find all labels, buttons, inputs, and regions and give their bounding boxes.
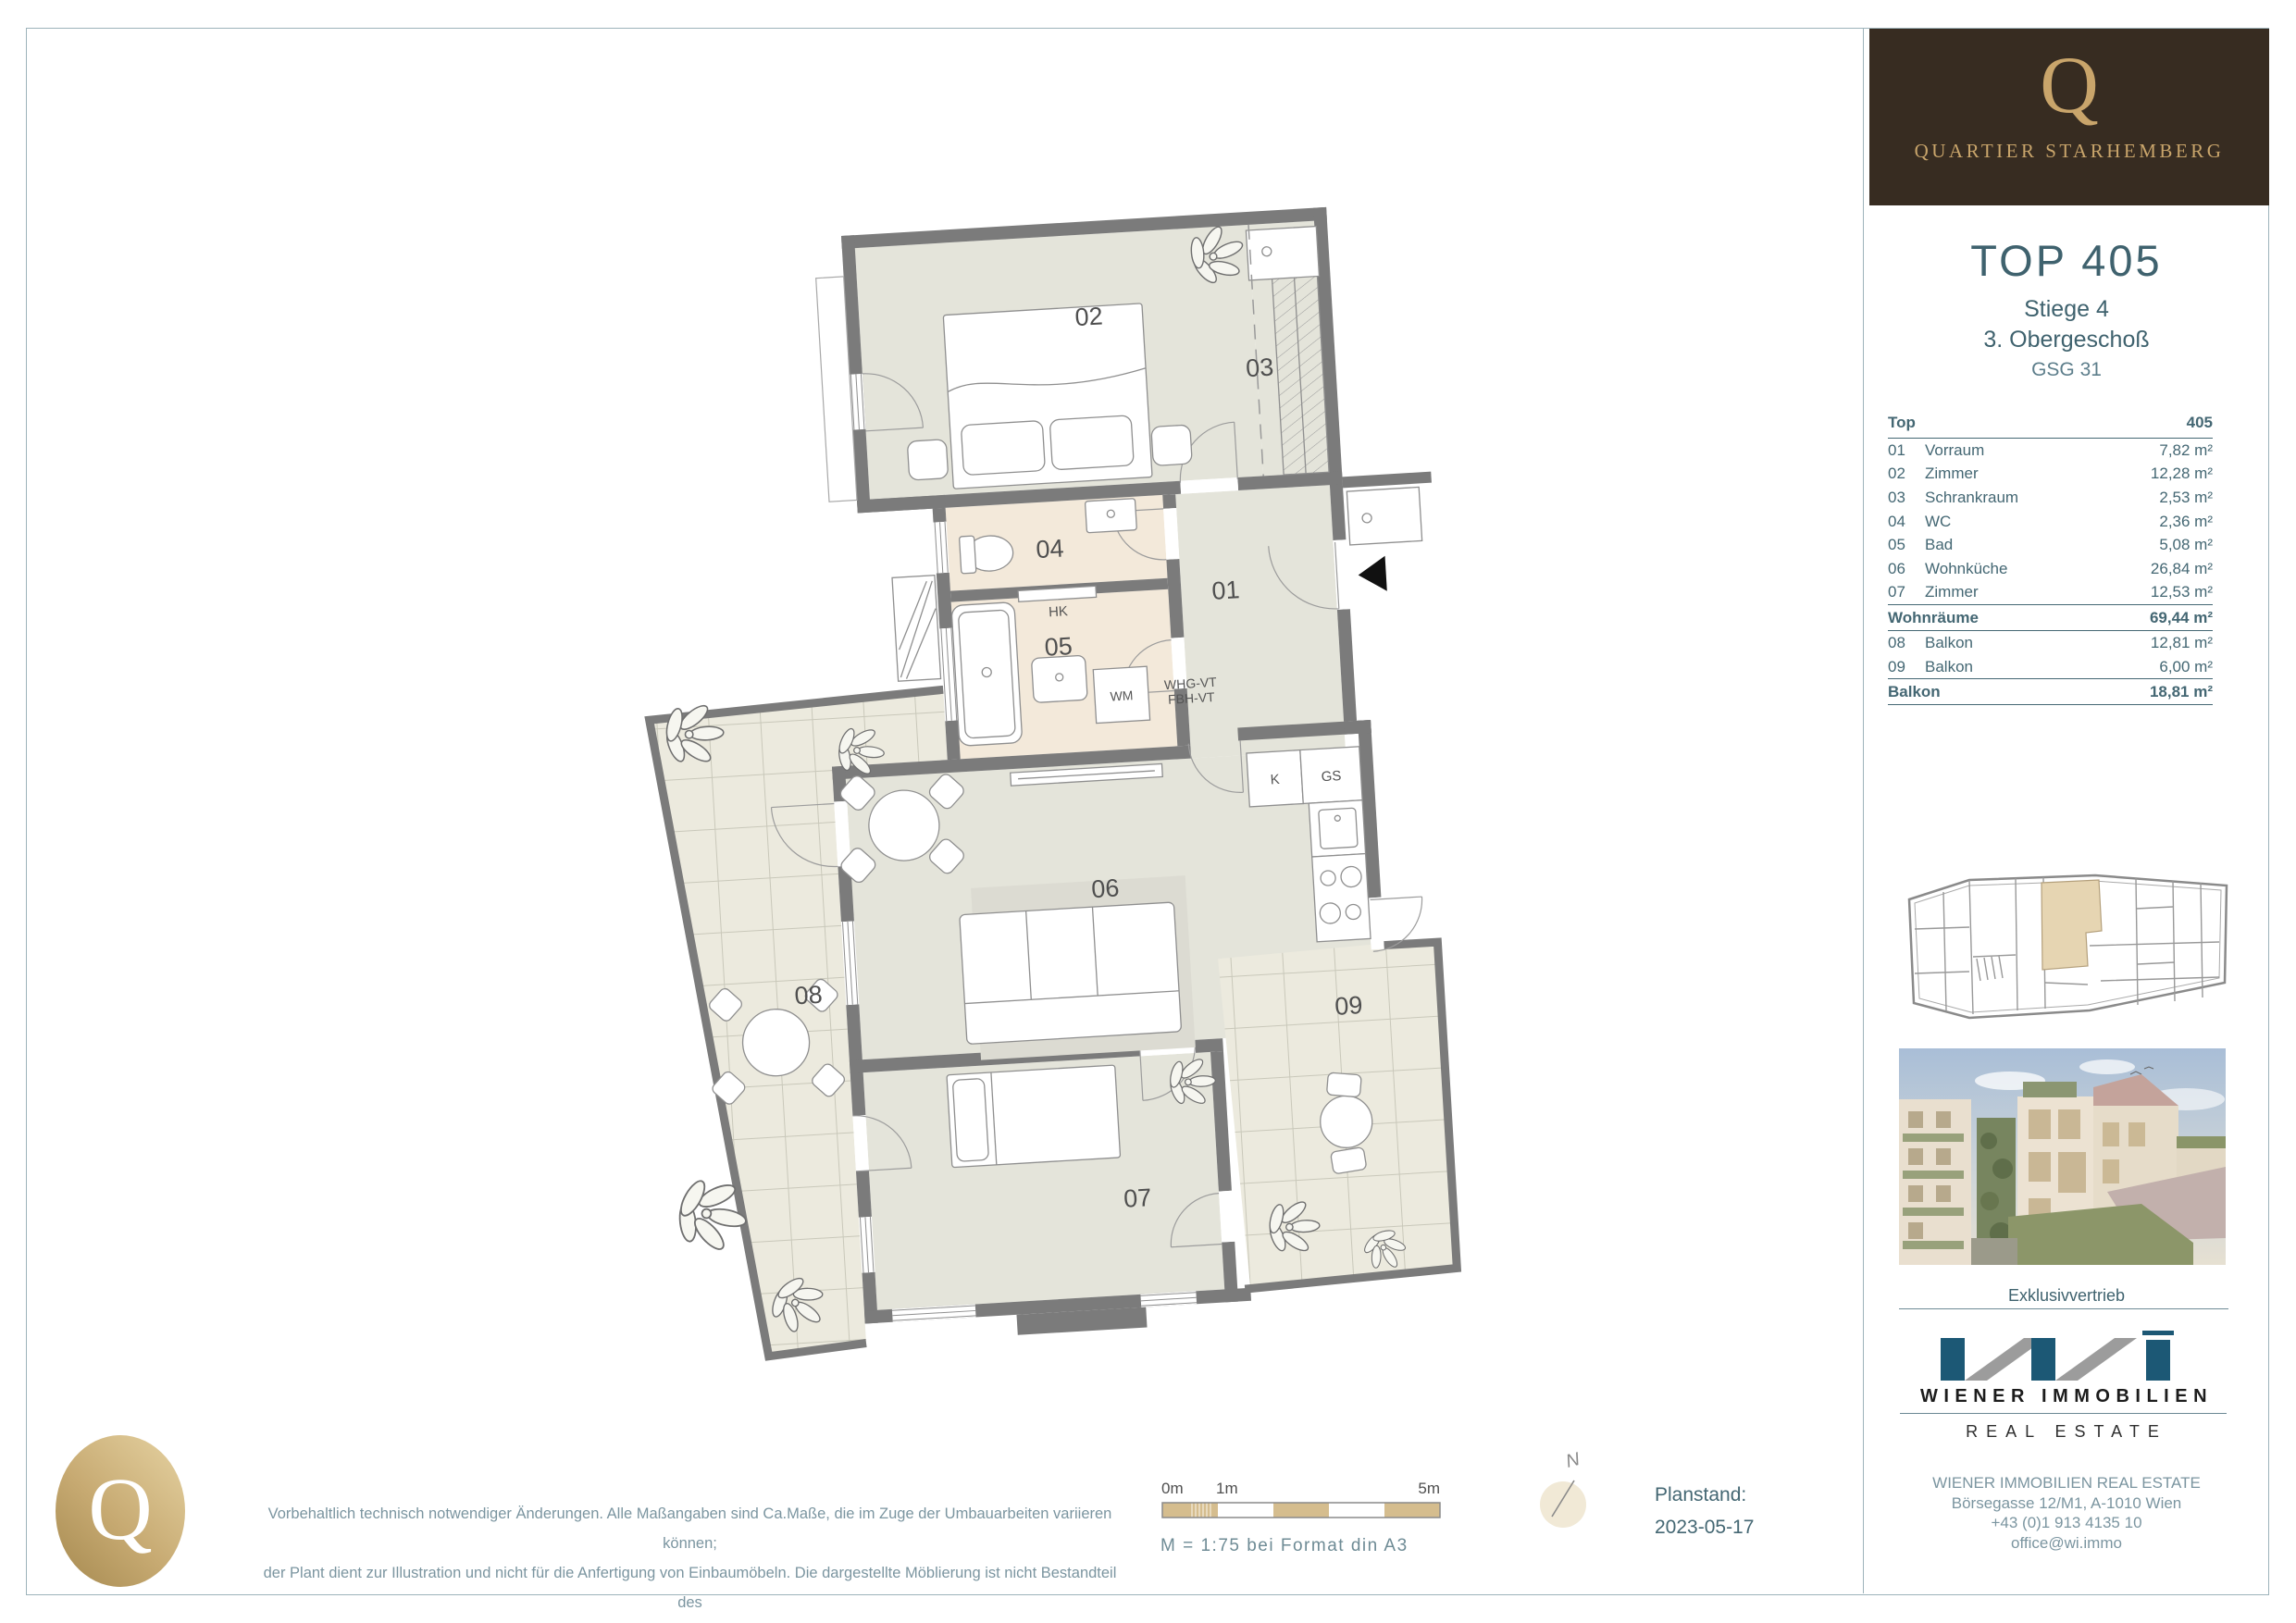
north-label: N — [1564, 1449, 1582, 1472]
row-name: Zimmer — [1925, 583, 2151, 601]
table-row: 06Wohnküche26,84 m² — [1888, 557, 2213, 581]
divider-line — [1899, 1308, 2228, 1309]
row-value: 12,28 m² — [2151, 465, 2213, 483]
row-nr: 09 — [1888, 658, 1925, 676]
brand-logo: Q QUARTIER STARHEMBERG — [1869, 29, 2269, 205]
room-03-label: 03 — [1245, 353, 1274, 383]
area-table-header: Top 405 — [1888, 414, 2213, 439]
row-name: Balkon — [1925, 634, 2151, 652]
contact-line: Börsegasse 12/M1, A-1010 Wien — [1863, 1493, 2270, 1514]
row-name: Schrankraum — [1925, 489, 2159, 507]
unit-title: TOP 405 — [1863, 235, 2270, 286]
wiener-immobilien-name: WIENER IMMOBILIEN — [1863, 1386, 2270, 1407]
room-02-label: 02 — [1074, 302, 1104, 331]
row-nr: 03 — [1888, 489, 1925, 507]
table-row: 03Schrankraum2,53 m² — [1888, 486, 2213, 510]
row-value: 12,53 m² — [2151, 583, 2213, 601]
scale-bar: 0m 1m 5m — [1157, 1473, 1453, 1527]
header-value: 405 — [2187, 414, 2213, 438]
subtotal-name: Wohnräume — [1888, 609, 1979, 627]
row-name: WC — [1925, 513, 2159, 531]
unit-code: GSG 31 — [1863, 359, 2270, 381]
unit-stiege: Stiege 4 — [1863, 296, 2270, 323]
fbh-vt-label: FBH-VT — [1168, 689, 1216, 707]
table-row: 09Balkon6,00 m² — [1888, 655, 2213, 679]
area-table: Top 405 01Vorraum7,82 m² 02Zimmer12,28 m… — [1888, 414, 2213, 705]
contact-line: +43 (0)1 913 4135 10 — [1863, 1513, 2270, 1533]
subtotal-name: Balkon — [1888, 683, 1941, 701]
contact-line: WIENER IMMOBILIEN REAL ESTATE — [1863, 1473, 2270, 1493]
disclaimer-line: Lieferumfanges und dient nur als Einrich… — [257, 1617, 1123, 1623]
row-nr: 07 — [1888, 583, 1925, 601]
divider-line — [1900, 1413, 2227, 1414]
subtotal-balkon: Balkon18,81 m² — [1888, 678, 2213, 705]
disclaimer-line: Vorbehaltlich technisch notwendiger Ände… — [257, 1499, 1123, 1558]
disclaimer: Vorbehaltlich technisch notwendiger Ände… — [257, 1499, 1123, 1623]
scale-1m: 1m — [1216, 1480, 1238, 1497]
row-nr: 02 — [1888, 465, 1925, 483]
row-value: 6,00 m² — [2159, 658, 2213, 676]
medallion-q: Q — [56, 1435, 185, 1583]
exclusive-distribution-label: Exklusivvertrieb — [1863, 1286, 2270, 1306]
room-08-label: 08 — [794, 981, 824, 1010]
row-value: 2,36 m² — [2159, 513, 2213, 531]
row-name: Wohnküche — [1925, 560, 2151, 578]
row-nr: 04 — [1888, 513, 1925, 531]
site-plan-thumbnail — [1905, 872, 2230, 1027]
planstand-date: 2023-05-17 — [1655, 1511, 1754, 1543]
subtotal-value: 69,44 m² — [2150, 609, 2213, 627]
radiator-label: HK — [1049, 603, 1069, 620]
row-nr: 01 — [1888, 441, 1925, 460]
row-nr: 05 — [1888, 536, 1925, 554]
room-06-label: 06 — [1090, 873, 1120, 903]
row-value: 12,81 m² — [2151, 634, 2213, 652]
header-label: Top — [1888, 414, 1916, 438]
plan-sheet: 02 03 04 05 01 06 07 08 09 HK WM K GS WH… — [0, 0, 2296, 1623]
floor-plan: 02 03 04 05 01 06 07 08 09 HK WM K GS WH… — [555, 167, 1518, 1425]
north-arrow-icon: N — [1527, 1443, 1610, 1541]
table-row: 08Balkon12,81 m² — [1888, 631, 2213, 655]
dishwasher-label: GS — [1321, 768, 1342, 785]
row-value: 26,84 m² — [2151, 560, 2213, 578]
wiener-immobilien-logo-icon — [1930, 1331, 2198, 1381]
scale-0m: 0m — [1161, 1480, 1184, 1497]
row-value: 7,82 m² — [2159, 441, 2213, 460]
brand-q-icon: Q — [1869, 45, 2269, 127]
row-name: Vorraum — [1925, 441, 2159, 460]
contact-line: office@wi.immo — [1863, 1533, 2270, 1554]
room-09-label: 09 — [1334, 991, 1363, 1021]
row-value: 5,08 m² — [2159, 536, 2213, 554]
room-05-label: 05 — [1044, 632, 1074, 662]
scale-5m: 5m — [1418, 1480, 1440, 1497]
unit-floor: 3. Obergeschoß — [1863, 327, 2270, 353]
q-medallion-icon: Q — [56, 1435, 185, 1587]
table-row: 05Bad5,08 m² — [1888, 533, 2213, 557]
subtotal-value: 18,81 m² — [2150, 683, 2213, 701]
room-01-label: 01 — [1211, 576, 1241, 605]
planstand-label: Planstand: — [1655, 1479, 1754, 1511]
brand-name: QUARTIER STARHEMBERG — [1869, 140, 2269, 163]
subtotal-wohnraeume: Wohnräume69,44 m² — [1888, 604, 2213, 631]
table-row: 04WC2,36 m² — [1888, 510, 2213, 534]
washing-machine-label: WM — [1110, 688, 1134, 703]
contact-block: WIENER IMMOBILIEN REAL ESTATE Börsegasse… — [1863, 1473, 2270, 1553]
plan-date: Planstand: 2023-05-17 — [1655, 1479, 1754, 1543]
table-row: 07Zimmer12,53 m² — [1888, 581, 2213, 605]
row-name: Balkon — [1925, 658, 2159, 676]
row-nr: 08 — [1888, 634, 1925, 652]
table-row: 02Zimmer12,28 m² — [1888, 463, 2213, 487]
table-row: 01Vorraum7,82 m² — [1888, 439, 2213, 463]
scale-text: M = 1:75 bei Format din A3 — [1160, 1536, 1409, 1556]
fridge-label: K — [1270, 772, 1280, 788]
row-name: Zimmer — [1925, 465, 2151, 483]
disclaimer-line: der Plant dient zur Illustration und nic… — [257, 1558, 1123, 1617]
row-nr: 06 — [1888, 560, 1925, 578]
room-07-label: 07 — [1123, 1183, 1152, 1213]
room-04-label: 04 — [1036, 534, 1065, 564]
row-value: 2,53 m² — [2159, 489, 2213, 507]
real-estate-label: REAL ESTATE — [1863, 1422, 2270, 1442]
entrance-arrow-icon — [1358, 556, 1387, 593]
row-name: Bad — [1925, 536, 2159, 554]
building-rendering — [1899, 1048, 2226, 1265]
